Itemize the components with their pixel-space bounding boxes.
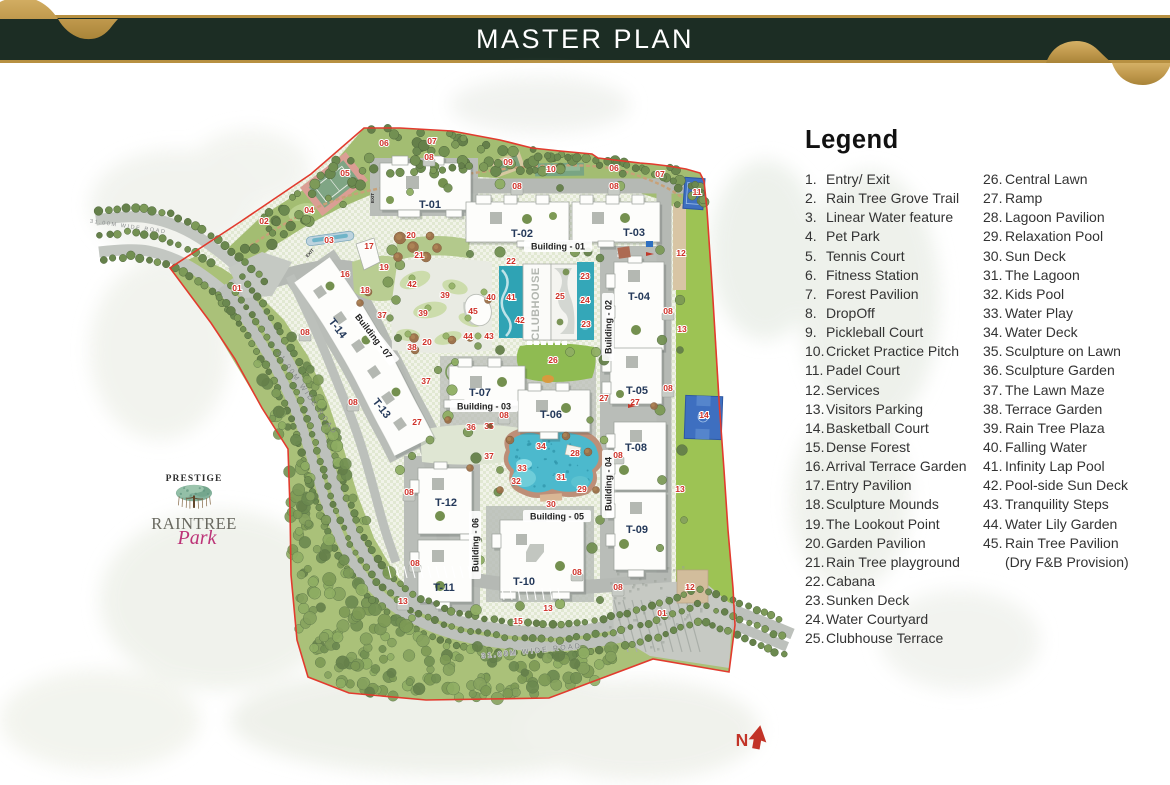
svg-text:T-03: T-03 [623,227,645,239]
svg-text:EXIT: EXIT [370,193,375,203]
svg-text:13: 13 [677,324,687,334]
svg-text:45: 45 [468,306,478,316]
svg-text:23: 23 [580,271,590,281]
svg-text:13: 13 [398,596,408,606]
svg-text:T-09: T-09 [626,524,648,536]
svg-text:08: 08 [609,181,619,191]
svg-text:37: 37 [421,376,431,386]
svg-text:34: 34 [536,441,546,451]
svg-text:T-05: T-05 [626,385,648,397]
svg-text:Building - 02: Building - 02 [604,300,614,354]
svg-text:39: 39 [440,290,450,300]
svg-text:T-08: T-08 [625,442,647,454]
svg-text:43: 43 [484,331,494,341]
svg-text:42: 42 [407,279,417,289]
svg-text:Building - 05: Building - 05 [530,512,584,522]
svg-text:05: 05 [340,168,350,178]
svg-text:T-07: T-07 [469,387,491,399]
svg-text:T-12: T-12 [435,497,457,509]
svg-text:40: 40 [486,292,496,302]
svg-text:20: 20 [406,230,416,240]
svg-text:19: 19 [379,262,389,272]
svg-text:38: 38 [407,342,417,352]
svg-text:37: 37 [377,310,387,320]
svg-text:07: 07 [655,169,665,179]
svg-text:01: 01 [657,608,667,618]
svg-text:08: 08 [348,397,358,407]
svg-text:N: N [736,730,749,750]
svg-text:42: 42 [515,315,525,325]
svg-text:12: 12 [685,582,695,592]
svg-text:T-10: T-10 [513,576,535,588]
svg-text:28: 28 [570,448,580,458]
svg-text:26: 26 [548,355,558,365]
svg-text:44: 44 [463,331,473,341]
svg-text:08: 08 [512,181,522,191]
svg-text:25: 25 [555,291,565,301]
svg-text:13: 13 [675,484,685,494]
svg-text:Building - 04: Building - 04 [604,457,614,511]
svg-text:08: 08 [663,306,673,316]
svg-text:27: 27 [599,393,609,403]
svg-text:41: 41 [506,292,516,302]
svg-text:15: 15 [513,616,523,626]
svg-text:24: 24 [580,295,590,305]
svg-text:Building - 01: Building - 01 [531,242,585,252]
svg-text:08: 08 [300,327,310,337]
svg-text:06: 06 [379,138,389,148]
svg-text:37: 37 [484,451,494,461]
svg-text:11: 11 [692,187,701,197]
svg-text:T-04: T-04 [628,291,651,303]
svg-text:08: 08 [424,152,434,162]
svg-text:20: 20 [422,337,432,347]
svg-text:30: 30 [546,499,556,509]
svg-text:13: 13 [543,603,553,613]
svg-text:Building - 06: Building - 06 [471,518,481,572]
svg-text:08: 08 [499,410,509,420]
svg-text:16: 16 [340,269,350,279]
svg-text:08: 08 [613,582,623,592]
svg-text:23: 23 [581,319,591,329]
svg-text:02: 02 [259,216,269,226]
svg-text:01: 01 [232,283,242,293]
svg-text:T-06: T-06 [540,409,562,421]
svg-text:31: 31 [556,472,566,482]
svg-text:T-01: T-01 [419,199,441,211]
svg-text:04: 04 [304,205,314,215]
svg-text:21: 21 [414,250,424,260]
svg-text:T-02: T-02 [511,228,533,240]
svg-text:08: 08 [572,567,582,577]
svg-text:32: 32 [511,476,521,486]
svg-text:09: 09 [503,157,513,167]
svg-text:36: 36 [466,422,476,432]
svg-text:14: 14 [699,410,709,420]
svg-text:07: 07 [427,136,437,146]
svg-text:T-11: T-11 [433,582,454,594]
svg-text:27: 27 [412,417,422,427]
svg-text:CLUBHOUSE: CLUBHOUSE [530,267,542,340]
svg-text:08: 08 [663,383,673,393]
svg-text:08: 08 [613,450,623,460]
svg-text:39: 39 [418,308,428,318]
svg-text:29: 29 [577,484,587,494]
svg-text:10: 10 [546,164,556,174]
svg-text:06: 06 [609,163,619,173]
svg-text:33: 33 [517,463,527,473]
svg-text:03: 03 [324,235,334,245]
svg-text:18: 18 [360,285,370,295]
svg-text:08: 08 [404,487,414,497]
svg-text:17: 17 [364,241,374,251]
svg-text:22: 22 [506,256,516,266]
svg-text:12: 12 [676,248,686,258]
